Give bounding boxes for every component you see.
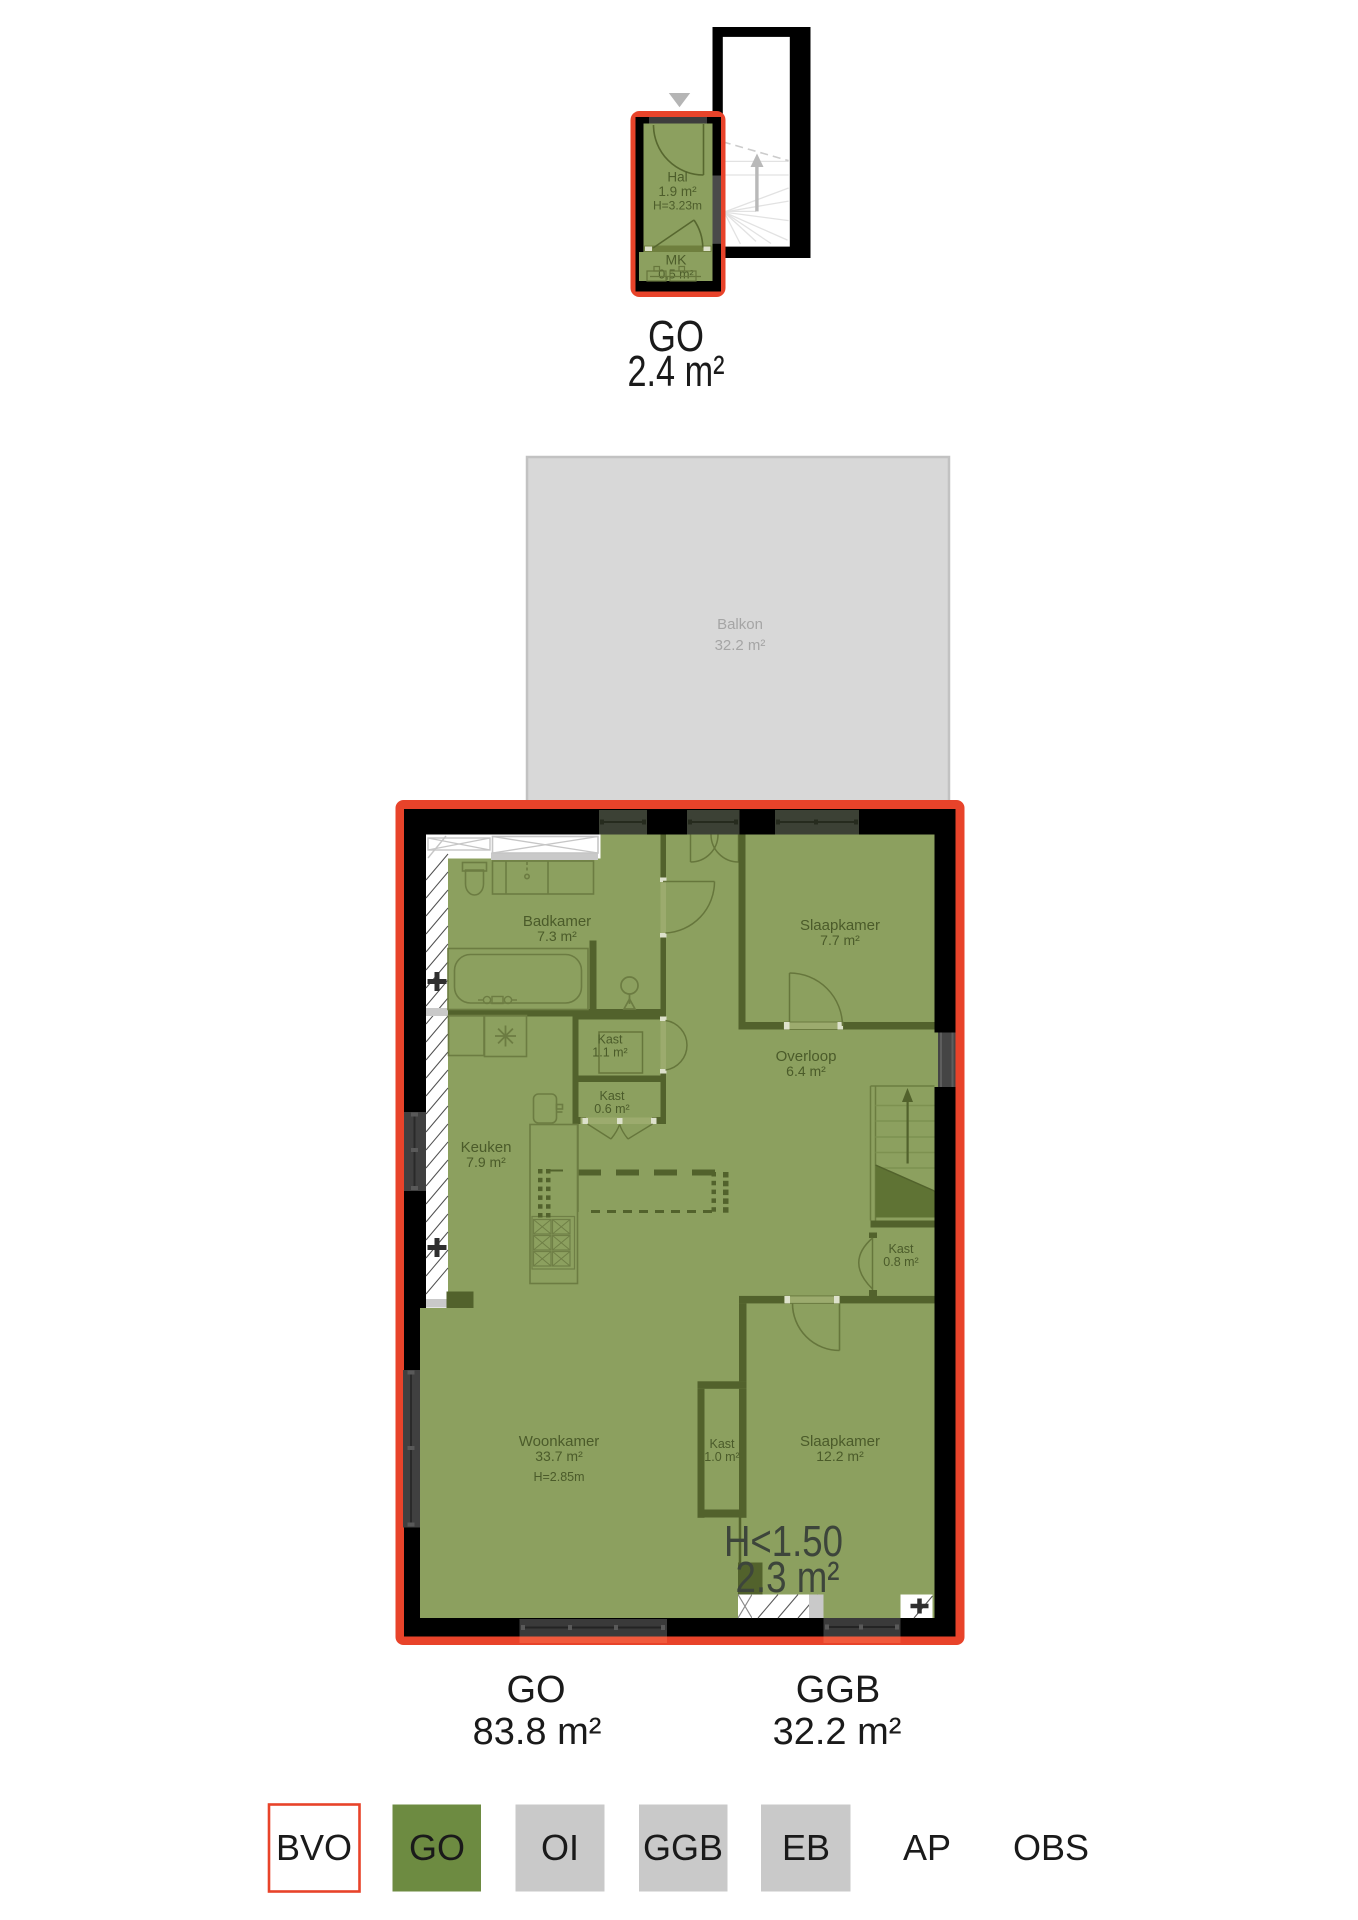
svg-text:2.3 m²: 2.3 m² <box>736 1553 840 1602</box>
svg-text:GGB: GGB <box>643 1827 723 1868</box>
svg-text:Balkon: Balkon <box>717 616 763 633</box>
svg-text:GO: GO <box>409 1827 465 1868</box>
svg-text:6.4 m²: 6.4 m² <box>786 1063 826 1079</box>
svg-text:0.8 m²: 0.8 m² <box>883 1255 918 1269</box>
svg-text:Kast: Kast <box>709 1437 735 1451</box>
svg-text:GGB: GGB <box>796 1669 880 1711</box>
svg-text:1.0 m²: 1.0 m² <box>704 1450 739 1464</box>
svg-text:BVO: BVO <box>276 1827 352 1868</box>
svg-text:33.7 m²: 33.7 m² <box>535 1448 583 1464</box>
svg-text:12.2 m²: 12.2 m² <box>816 1448 864 1464</box>
svg-text:GO: GO <box>506 1669 565 1711</box>
svg-text:AP: AP <box>903 1827 951 1868</box>
svg-text:83.8 m²: 83.8 m² <box>473 1711 602 1753</box>
svg-text:Hal: Hal <box>667 170 687 185</box>
svg-text:0.6 m²: 0.6 m² <box>594 1102 629 1116</box>
svg-text:32.2 m²: 32.2 m² <box>773 1711 902 1753</box>
svg-text:H=3.23m: H=3.23m <box>653 199 702 213</box>
svg-text:32.2 m²: 32.2 m² <box>715 637 766 654</box>
svg-text:7.9 m²: 7.9 m² <box>466 1154 506 1170</box>
svg-text:Kast: Kast <box>597 1033 623 1047</box>
svg-text:MK: MK <box>666 252 688 268</box>
svg-text:OI: OI <box>541 1827 579 1868</box>
svg-text:EB: EB <box>782 1827 830 1868</box>
svg-text:1.9 m²: 1.9 m² <box>658 184 697 199</box>
svg-text:2.4 m²: 2.4 m² <box>628 347 725 396</box>
svg-text:H=2.85m: H=2.85m <box>533 1470 584 1484</box>
svg-text:Kast: Kast <box>599 1089 625 1103</box>
svg-text:1.1 m²: 1.1 m² <box>592 1046 627 1060</box>
svg-text:Kast: Kast <box>888 1242 914 1256</box>
svg-text:OBS: OBS <box>1013 1827 1089 1868</box>
svg-text:0,5 m²: 0,5 m² <box>658 268 693 282</box>
svg-text:7.7 m²: 7.7 m² <box>820 932 860 948</box>
svg-text:7.3 m²: 7.3 m² <box>537 928 577 944</box>
